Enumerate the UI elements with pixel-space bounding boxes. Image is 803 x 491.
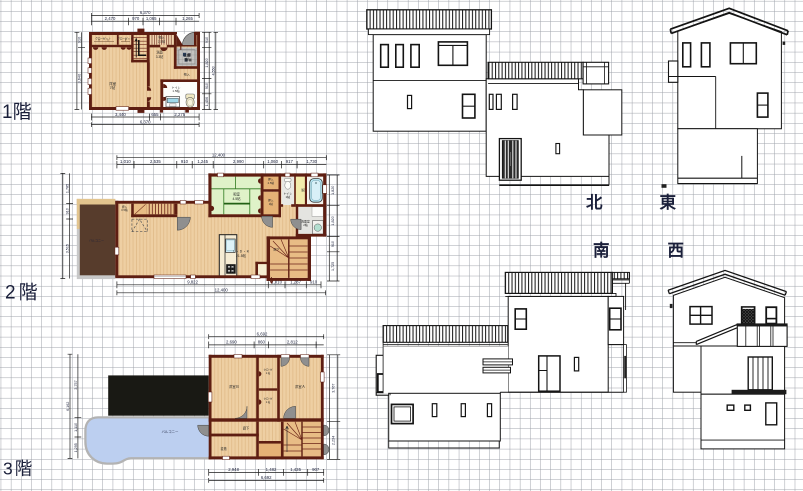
svg-text:1,820: 1,820 <box>331 216 335 225</box>
svg-text:バルコニー: バルコニー <box>89 238 104 242</box>
svg-text:3,440: 3,440 <box>115 112 126 117</box>
svg-text:21.5帖: 21.5帖 <box>236 253 247 258</box>
svg-text:1,730: 1,730 <box>306 159 317 164</box>
svg-text:1,245: 1,245 <box>197 159 208 164</box>
svg-text:6,370: 6,370 <box>140 10 151 15</box>
svg-text:1,010: 1,010 <box>120 159 131 164</box>
svg-text:6,692: 6,692 <box>261 475 272 480</box>
svg-text:2,275: 2,275 <box>174 112 185 117</box>
svg-text:9,822: 9,822 <box>187 280 198 285</box>
svg-text:東: 東 <box>660 192 677 212</box>
svg-text:1.5帖: 1.5帖 <box>172 88 179 93</box>
svg-text:北: 北 <box>586 193 603 212</box>
svg-text:廊下: 廊下 <box>273 247 279 252</box>
svg-text:2,535: 2,535 <box>150 159 161 164</box>
svg-text:6,692: 6,692 <box>257 332 268 337</box>
svg-text:1 帖: 1 帖 <box>266 371 271 375</box>
svg-text:西: 西 <box>668 242 685 260</box>
svg-text:廊下: 廊下 <box>243 425 250 430</box>
svg-text:クローゼット: クローゼット <box>95 37 111 41</box>
svg-text:4,550: 4,550 <box>212 66 216 75</box>
svg-text:2,990: 2,990 <box>233 159 244 164</box>
svg-text:2,470: 2,470 <box>105 16 116 21</box>
svg-text:2階: 2階 <box>5 282 41 304</box>
svg-text:1,785: 1,785 <box>66 184 70 193</box>
svg-text:4.5帖: 4.5帖 <box>232 196 241 201</box>
svg-text:3,767: 3,767 <box>332 384 336 393</box>
svg-text:3,757: 3,757 <box>74 380 78 389</box>
svg-text:6,162: 6,162 <box>66 402 70 411</box>
svg-text:物入: 物入 <box>184 72 190 77</box>
svg-text:1 帖: 1 帖 <box>266 400 271 404</box>
svg-text:910: 910 <box>310 280 318 285</box>
svg-text:1,482: 1,482 <box>266 467 277 472</box>
svg-text:12,400: 12,400 <box>215 288 229 293</box>
svg-text:910: 910 <box>66 208 70 214</box>
svg-text:910: 910 <box>76 36 81 43</box>
svg-text:洋室Ｂ: 洋室Ｂ <box>229 384 240 389</box>
svg-text:バルコニー: バルコニー <box>162 430 179 434</box>
svg-text:3,640: 3,640 <box>76 73 81 84</box>
svg-text:洗面: 洗面 <box>156 50 162 55</box>
svg-text:1,065: 1,065 <box>146 16 157 21</box>
svg-text:2帖: 2帖 <box>303 222 308 227</box>
svg-text:1帖: 1帖 <box>269 202 273 206</box>
svg-text:洋室Ａ: 洋室Ａ <box>295 384 306 389</box>
svg-text:洋室: 洋室 <box>109 81 117 86</box>
svg-text:1,456: 1,456 <box>205 97 209 106</box>
svg-text:3帖: 3帖 <box>184 56 189 61</box>
svg-text:910: 910 <box>181 159 189 164</box>
svg-text:860: 860 <box>258 340 266 345</box>
svg-text:1帖: 1帖 <box>285 194 290 199</box>
svg-text:1,295: 1,295 <box>74 443 78 452</box>
svg-text:1,265: 1,265 <box>182 16 193 21</box>
svg-text:1,820: 1,820 <box>331 186 335 195</box>
svg-text:1,725: 1,725 <box>331 262 335 271</box>
svg-text:2.5帖: 2.5帖 <box>158 38 165 43</box>
svg-text:3階: 3階 <box>3 459 34 479</box>
svg-text:1,060: 1,060 <box>267 159 278 164</box>
svg-text:3,515: 3,515 <box>66 244 70 253</box>
svg-text:970: 970 <box>132 16 140 21</box>
svg-text:910: 910 <box>205 37 209 43</box>
svg-text:910: 910 <box>331 241 335 247</box>
svg-text:2,690: 2,690 <box>226 340 237 345</box>
svg-text:907: 907 <box>312 467 320 472</box>
svg-text:1,435: 1,435 <box>290 467 301 472</box>
svg-text:2,948: 2,948 <box>228 467 239 472</box>
svg-text:南: 南 <box>593 240 610 260</box>
svg-text:書斎: 書斎 <box>220 446 227 451</box>
svg-text:0.5帖: 0.5帖 <box>121 208 128 212</box>
svg-text:2,234: 2,234 <box>332 436 336 445</box>
svg-text:910: 910 <box>205 83 209 89</box>
svg-text:3.3帖: 3.3帖 <box>156 54 164 59</box>
svg-text:6,370: 6,370 <box>140 120 151 125</box>
svg-text:クローゼット: クローゼット <box>117 37 133 41</box>
svg-text:917: 917 <box>286 159 294 164</box>
svg-text:7帖: 7帖 <box>110 85 116 90</box>
svg-text:Ｌ・Ｄ・Ｋ: Ｌ・Ｄ・Ｋ <box>233 250 250 254</box>
svg-text:2.5帖: 2.5帖 <box>268 181 275 185</box>
svg-text:1,110: 1,110 <box>74 423 78 432</box>
svg-text:1階: 1階 <box>2 101 32 123</box>
svg-text:12,400: 12,400 <box>212 152 226 157</box>
svg-text:2,812: 2,812 <box>287 340 298 345</box>
svg-text:1,820: 1,820 <box>205 58 209 67</box>
svg-text:655: 655 <box>151 112 159 117</box>
